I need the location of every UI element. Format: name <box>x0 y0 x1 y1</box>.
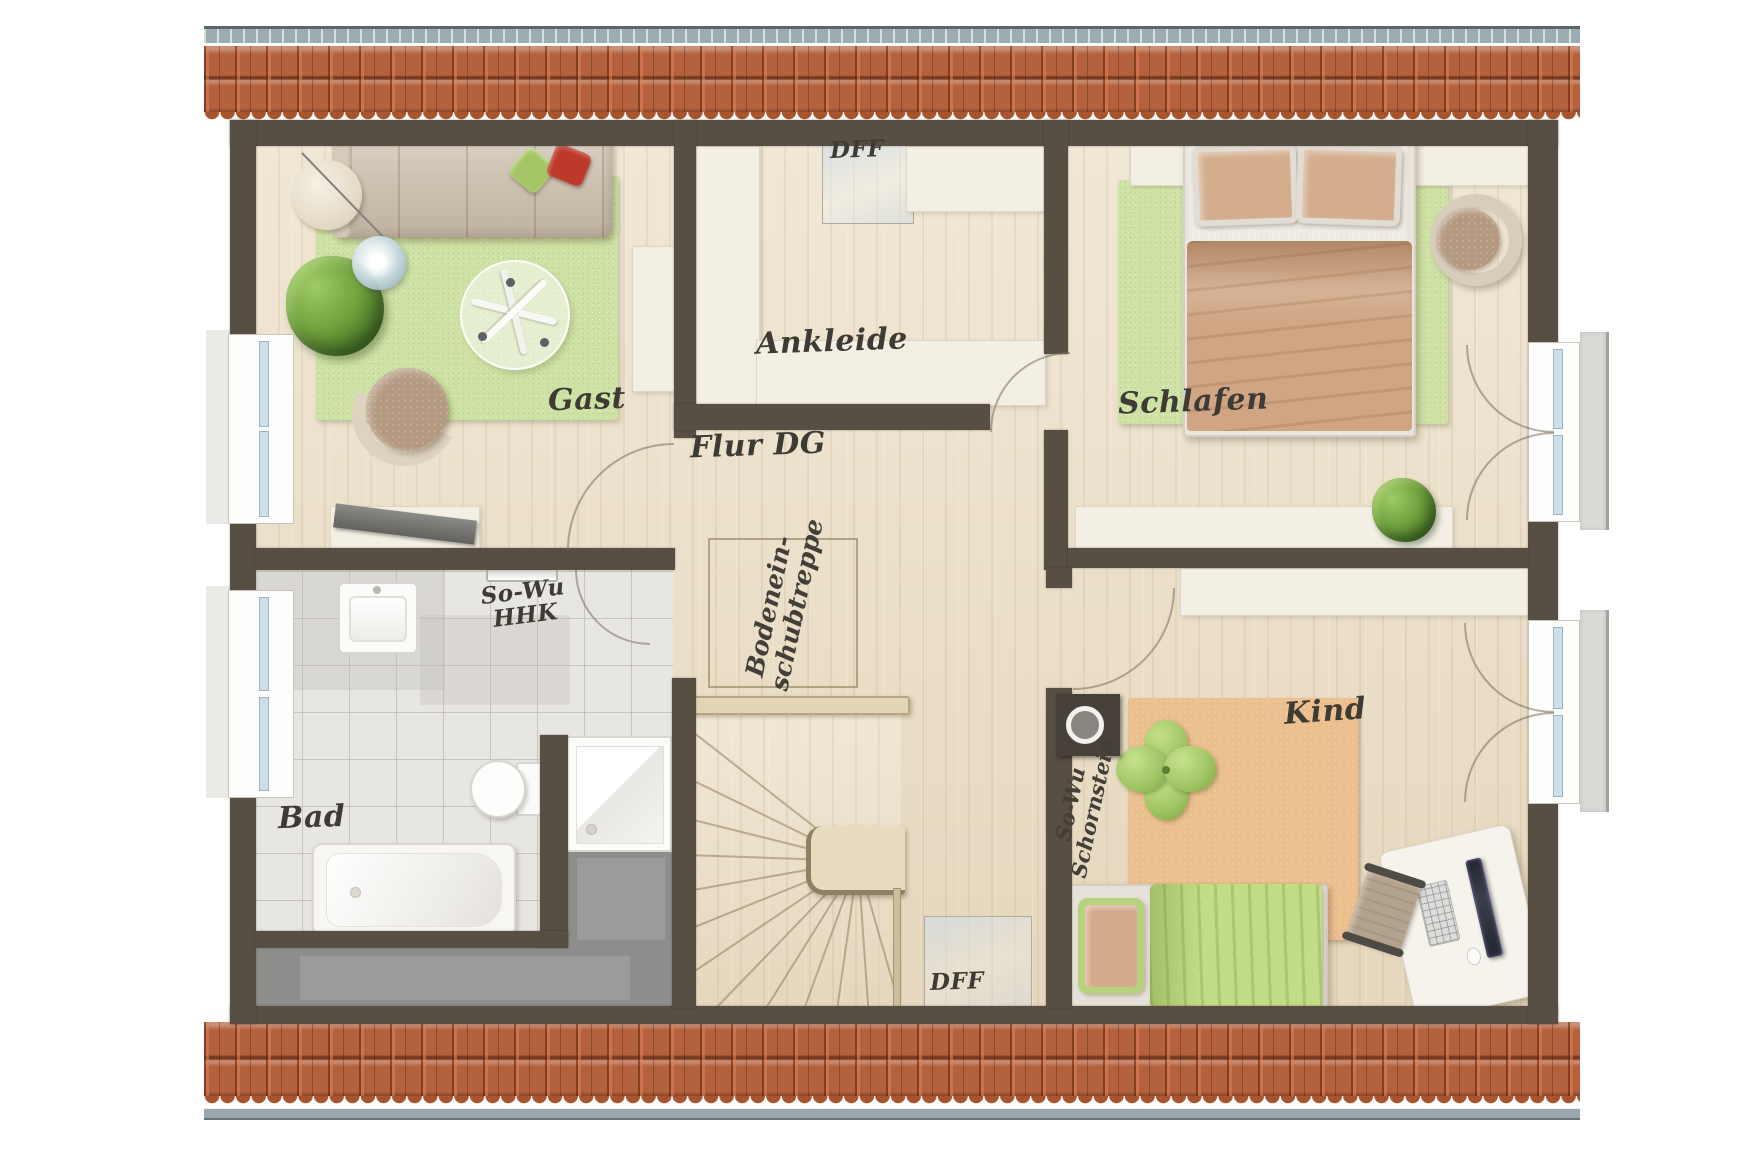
window-pane <box>259 341 269 427</box>
flower-petal <box>1164 746 1216 792</box>
roof-tiles-top <box>204 46 1580 112</box>
window-pane <box>259 431 269 517</box>
wall-schlafen-left-lower <box>1044 430 1068 570</box>
wall-left <box>230 120 256 1024</box>
wall-ankleide-bottom <box>674 404 990 430</box>
kid-bed-duvet <box>1150 884 1322 1008</box>
flower-petal <box>1116 746 1168 792</box>
floor-lamp-bulb <box>370 254 386 270</box>
wall-shower-niche <box>540 735 568 947</box>
kid-bed-pillow <box>1078 898 1144 994</box>
roof-gutter <box>204 1108 1580 1120</box>
roof-window-bottom <box>924 916 1032 1010</box>
stair-landing <box>806 826 905 895</box>
plant-schlafen <box>1372 478 1436 542</box>
ankleide-wardrobe-top <box>906 146 1046 212</box>
mouse <box>1465 946 1483 967</box>
stair-rail-side <box>893 888 901 1010</box>
pouf <box>366 368 448 450</box>
bed-pillow <box>1192 143 1299 227</box>
room-label-gast: Gast <box>547 381 626 419</box>
roof-strip-bottom <box>204 1022 1580 1118</box>
shower-drain <box>586 824 597 835</box>
window-pane <box>1553 715 1563 797</box>
window-bad <box>228 590 294 798</box>
wall-bottom <box>230 1006 1558 1024</box>
room-label-bad: Bad <box>277 799 345 836</box>
kid-bed <box>1066 884 1328 1010</box>
balcony-kind <box>1580 610 1609 812</box>
coffee-table-bolt <box>478 332 487 341</box>
kind-shelf-band <box>1180 568 1530 616</box>
side-table <box>292 160 362 230</box>
gast-wardrobe <box>632 246 678 392</box>
flower-center <box>1162 766 1170 774</box>
wall-gast-ankleide <box>674 120 696 438</box>
monitor <box>1465 857 1503 958</box>
wall-kind-top <box>1068 548 1528 568</box>
bathtub <box>312 843 516 937</box>
round-chair-cushion <box>1436 208 1500 270</box>
annotation-towel-radiator: So-Wu HHK <box>479 575 569 633</box>
storage-area-inner <box>577 858 665 940</box>
wall-right <box>1528 120 1558 1024</box>
window-pane <box>1553 349 1563 429</box>
window-gast <box>228 334 294 524</box>
window-pane <box>1553 627 1563 709</box>
flower-pouf <box>1116 720 1216 820</box>
roof-tiles-bottom <box>204 1022 1580 1096</box>
wall-stair-west <box>672 678 696 1008</box>
floor-plan-attic: Gast Ankleide Schlafen Flur DG Bad Kind … <box>0 0 1754 1175</box>
sink-bowl <box>349 596 407 642</box>
room-label-flur: Flur DG <box>689 426 826 466</box>
roof-tile-scallop <box>204 112 1580 120</box>
roof-strip-top <box>204 26 1580 122</box>
coffee-table-bolt <box>506 278 515 287</box>
bathtub-drain <box>350 887 361 898</box>
roof-tile-scallop <box>204 1096 1580 1104</box>
balcony-schlafen <box>1580 332 1609 530</box>
room-label-ankleide: Ankleide <box>755 321 908 361</box>
wall-top <box>230 120 1558 146</box>
bathroom-sink <box>338 582 418 654</box>
ankleide-wardrobe-left <box>696 146 760 406</box>
window-pane <box>1553 435 1563 515</box>
wall-kind-left-upper <box>1046 568 1072 588</box>
stair-handrail <box>686 696 910 715</box>
room-label-kind: Kind <box>1283 691 1368 732</box>
bed-pillow <box>1296 143 1403 227</box>
wall-gast-bottom <box>255 548 675 570</box>
annotation-dff-top: DFF <box>830 135 885 164</box>
wall-bad-bottom <box>255 931 568 948</box>
room-label-schlafen: Schlafen <box>1117 381 1269 421</box>
sink-faucet <box>373 586 381 594</box>
storage-area-inner <box>300 956 630 1000</box>
wall-schlafen-left-upper <box>1044 120 1068 354</box>
annotation-dff-bottom: DFF <box>930 967 985 996</box>
shower-tray <box>566 736 672 852</box>
toilet-bowl <box>470 760 526 818</box>
roof-ridge <box>204 26 1580 43</box>
coffee-table-bolt <box>540 338 549 347</box>
window-pane <box>259 597 269 691</box>
window-pane <box>259 697 269 791</box>
